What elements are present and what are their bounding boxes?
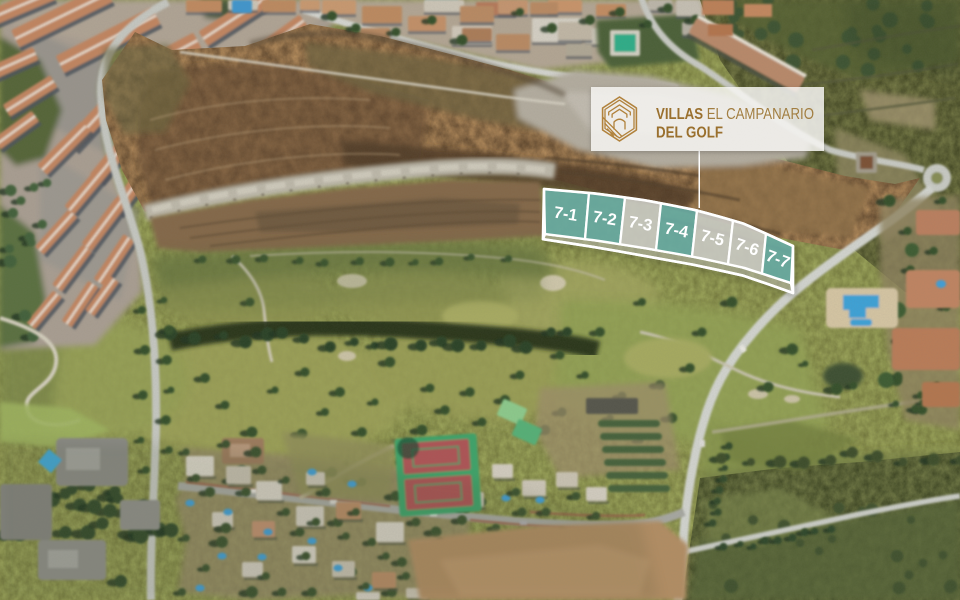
svg-text:7-2: 7-2 [592, 208, 618, 230]
svg-text:7-1: 7-1 [553, 204, 579, 226]
svg-text:VILLAS EL CAMPANARIO: VILLAS EL CAMPANARIO [656, 106, 814, 123]
svg-text:DEL GOLF: DEL GOLF [656, 125, 723, 142]
